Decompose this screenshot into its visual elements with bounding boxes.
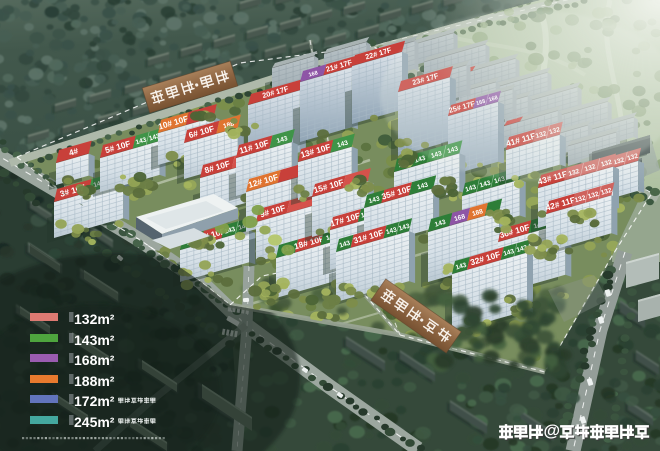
svg-text:188m²: 188m² bbox=[74, 373, 115, 389]
svg-text:@: @ bbox=[544, 421, 561, 440]
svg-text:168m²: 168m² bbox=[74, 352, 115, 368]
svg-text:245m²: 245m² bbox=[74, 414, 115, 430]
svg-text:172m²: 172m² bbox=[74, 393, 115, 409]
svg-text:132m²: 132m² bbox=[74, 311, 115, 327]
svg-text:143m²: 143m² bbox=[74, 332, 115, 348]
